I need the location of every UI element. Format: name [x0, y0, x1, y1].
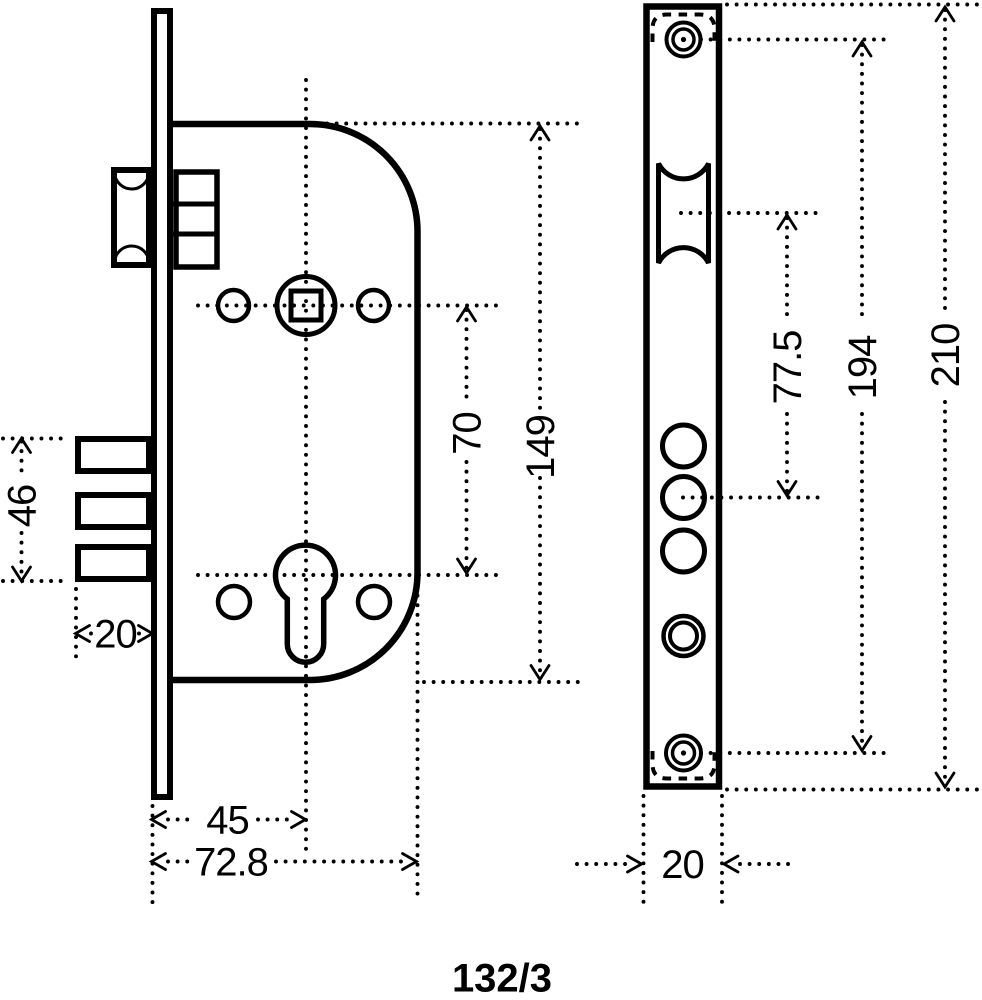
cylinder-cutout	[218, 545, 390, 662]
front-view: 77.5 194 210 20	[577, 5, 977, 907]
faceplate-front	[647, 7, 720, 787]
arrow-left-icon	[152, 854, 166, 870]
arrow-down-icon	[13, 567, 31, 581]
dim-label-194: 194	[841, 335, 885, 399]
euro-profile-keyhole	[276, 545, 336, 662]
deadbolt	[78, 439, 149, 579]
dim-plate-width: 20	[577, 843, 792, 887]
deadbolt-bar	[78, 495, 149, 527]
arrow-right-icon	[628, 856, 642, 872]
latch-body	[176, 172, 217, 267]
dim-label-72-8: 72.8	[194, 841, 268, 885]
dim-label-149: 149	[519, 415, 563, 479]
deadbolt-bar	[78, 439, 149, 471]
bottom-screw	[666, 736, 701, 771]
dim-backset: 45	[152, 799, 306, 843]
dim-roller-to-deadbolt: 77.5	[766, 215, 810, 496]
screw-center-dot	[681, 750, 686, 755]
arrow-down-icon	[853, 737, 871, 751]
dim-label-77-5: 77.5	[766, 331, 810, 405]
dim-screw-spacing: 194	[841, 42, 885, 751]
dim-label-20-plate: 20	[661, 843, 704, 887]
faceplate-side	[154, 11, 170, 797]
arrow-down-icon	[778, 482, 796, 496]
side-view: 46 20 70 149	[1, 11, 579, 903]
screw-center-dot	[681, 37, 686, 42]
product-code: 132/3	[452, 957, 552, 1000]
technical-drawing: 46 20 70 149	[0, 0, 982, 1000]
drawing-page: 46 20 70 149	[0, 0, 982, 1000]
arrow-right-icon	[403, 854, 417, 870]
dim-label-45: 45	[206, 799, 249, 843]
dim-plate-height: 210	[924, 7, 968, 787]
dim-label-20: 20	[94, 613, 137, 657]
arrow-down-icon	[531, 666, 549, 680]
dim-label-210: 210	[924, 324, 968, 388]
cylinder-screw-hole-left	[218, 586, 250, 618]
dim-deadbolt-throw: 20	[76, 589, 153, 659]
deadbolt-bar	[78, 547, 149, 579]
dim-label-46: 46	[1, 485, 45, 528]
arrow-right-icon	[292, 812, 306, 828]
top-screw	[667, 23, 701, 57]
dim-spindle-to-cylinder: 70	[446, 307, 490, 573]
dim-body-depth: 72.8	[152, 841, 417, 885]
dim-label-70: 70	[446, 412, 490, 455]
dim-body-height: 149	[519, 126, 563, 680]
dim-deadbolt-block-height: 46	[1, 439, 71, 582]
cylinder-screw-hole-right	[358, 586, 390, 618]
arrow-left-icon	[724, 856, 738, 872]
